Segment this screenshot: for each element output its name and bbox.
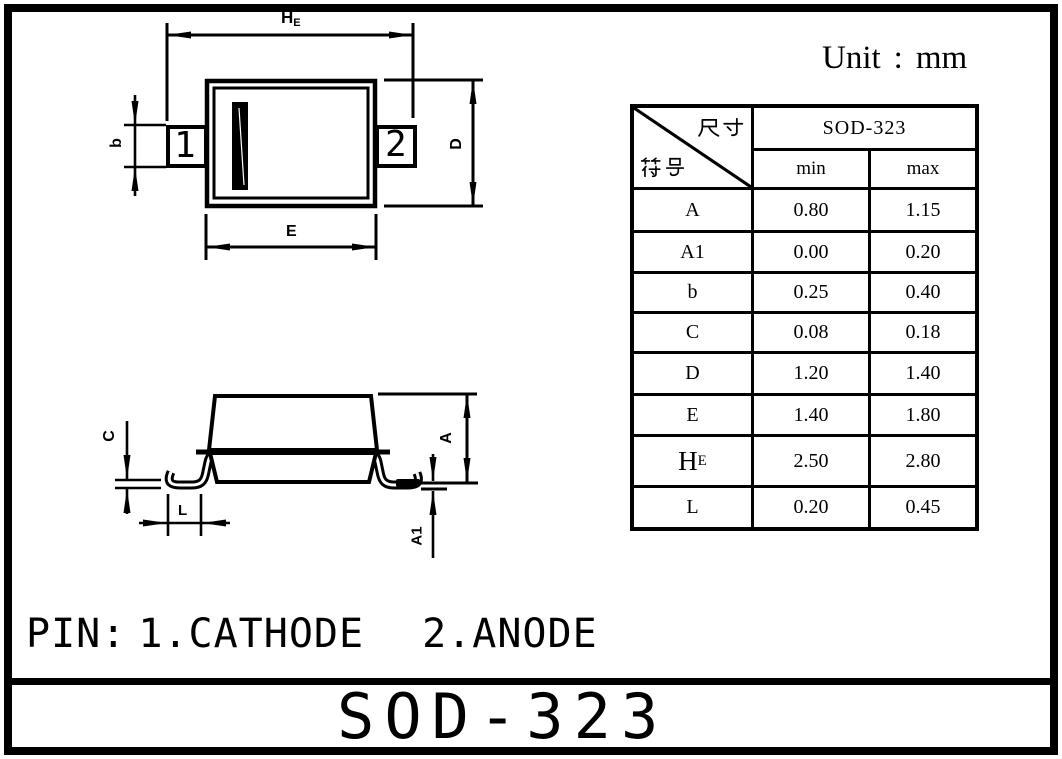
dim-label-a1: A1 (410, 526, 425, 545)
dim-label-l: L (178, 503, 187, 518)
dim-label-a: A (439, 432, 455, 444)
dim-label-he: HE (281, 9, 301, 29)
dimension-table: SOD-323 min max A 0.80 1.15 A1 0.00 0.20… (630, 104, 979, 531)
chinese-hao-glyph (664, 156, 686, 178)
table-row-symbol: A1 (634, 230, 751, 271)
table-row-min: 0.25 (751, 271, 868, 311)
pin2-number: 2 (385, 127, 407, 163)
table-row-symbol: L (634, 485, 751, 527)
pin-assignment-note: PIN:1.CATHODE2.ANODE (26, 612, 598, 656)
pin-note-anode: 2.ANODE (422, 611, 598, 657)
dim-label-c: C (102, 430, 118, 442)
dim-label-he-sub: E (293, 17, 300, 29)
table-row-symbol: HE (634, 434, 751, 485)
unit-value: mm (916, 40, 967, 76)
table-row-min: 1.20 (751, 351, 868, 393)
table-row-max: 1.15 (868, 187, 975, 230)
unit-note: Unit:mm (822, 40, 967, 76)
dim-label-he-main: H (281, 8, 293, 27)
table-row-max: 1.40 (868, 351, 975, 393)
table-row-min: 0.20 (751, 485, 868, 527)
table-row-symbol: C (634, 311, 751, 351)
table-row-min: 0.08 (751, 311, 868, 351)
table-row-max: 0.18 (868, 311, 975, 351)
corner-label-dimension (698, 116, 744, 138)
chinese-fu-glyph (640, 156, 662, 178)
dim-label-b: b (109, 138, 125, 148)
table-row-symbol: A (634, 187, 751, 230)
table-package-header: SOD-323 (751, 108, 975, 148)
package-drawing-page: HE b D E 1 2 C L A A1 Unit:mm (0, 0, 1062, 759)
table-row-min: 2.50 (751, 434, 868, 485)
pin1-number: 1 (174, 128, 196, 164)
pin-note-cathode: 1.CATHODE (138, 611, 364, 657)
dim-label-d: D (449, 138, 465, 150)
table-row-min: 1.40 (751, 393, 868, 434)
table-col-max: max (868, 148, 975, 187)
table-row-max: 1.80 (868, 393, 975, 434)
table-row-symbol: E (634, 393, 751, 434)
table-corner-cell (634, 108, 751, 187)
table-col-min: min (751, 148, 868, 187)
table-row-max: 2.80 (868, 434, 975, 485)
unit-label: Unit (822, 40, 881, 76)
table-row-symbol: b (634, 271, 751, 311)
unit-colon: : (881, 40, 916, 76)
table-row-max: 0.40 (868, 271, 975, 311)
table-row-max: 0.20 (868, 230, 975, 271)
table-row-symbol: D (634, 351, 751, 393)
table-row-max: 0.45 (868, 485, 975, 527)
dim-label-e: E (286, 224, 297, 240)
pin-note-prefix: PIN: (26, 611, 126, 657)
table-row-min: 0.80 (751, 187, 868, 230)
chinese-cun-glyph (722, 116, 744, 138)
table-row-min: 0.00 (751, 230, 868, 271)
package-name-title: SOD-323 (337, 686, 668, 748)
corner-label-symbol (640, 156, 686, 178)
chinese-chi-glyph (698, 116, 720, 138)
